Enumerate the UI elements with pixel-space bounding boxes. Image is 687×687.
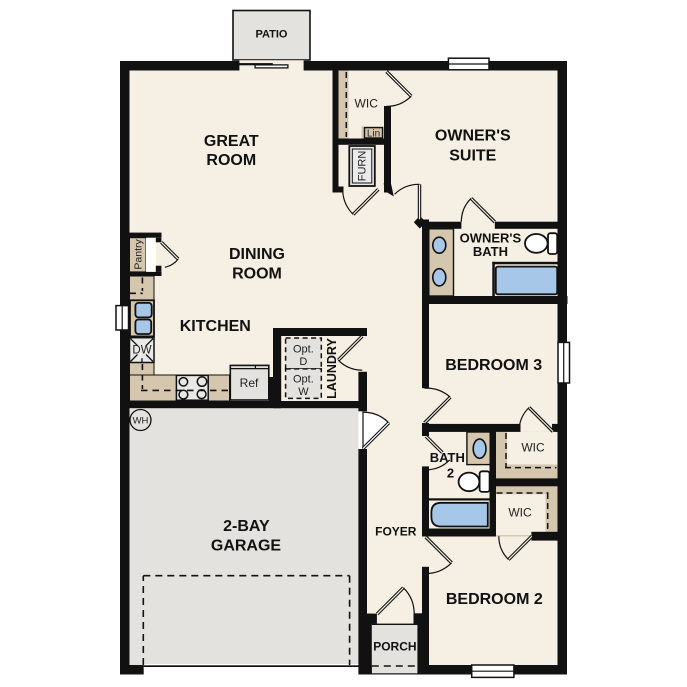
svg-text:SUITE: SUITE [449,147,496,164]
svg-text:GREAT: GREAT [204,133,259,150]
svg-text:ROOM: ROOM [232,266,282,283]
svg-text:ROOM: ROOM [206,152,256,169]
svg-text:BATH: BATH [473,244,508,259]
svg-text:FURN: FURN [357,151,369,182]
svg-text:WIC: WIC [355,96,379,110]
svg-text:BATH: BATH [430,450,465,465]
svg-text:2: 2 [447,466,454,481]
svg-text:WIC: WIC [508,506,532,520]
svg-text:OWNER'S: OWNER'S [435,127,511,144]
svg-text:WH: WH [133,415,149,426]
svg-text:LAUNDRY: LAUNDRY [325,338,339,399]
svg-text:W: W [298,386,309,398]
svg-text:WIC: WIC [521,441,545,455]
svg-text:Ref: Ref [240,376,259,390]
svg-text:PORCH: PORCH [373,640,416,654]
svg-text:2-BAY: 2-BAY [223,518,270,535]
svg-text:Opt.: Opt. [293,343,314,355]
svg-text:DW: DW [132,344,151,356]
svg-text:KITCHEN: KITCHEN [180,318,251,335]
svg-text:FOYER: FOYER [375,525,417,539]
svg-text:GARAGE: GARAGE [211,538,282,555]
svg-text:BEDROOM 3: BEDROOM 3 [445,357,542,374]
svg-text:Pantry: Pantry [133,238,145,269]
svg-text:PATIO: PATIO [256,29,288,41]
svg-text:Opt.: Opt. [293,373,314,385]
svg-text:D: D [299,356,307,368]
svg-text:DINING: DINING [229,246,285,263]
svg-text:Lin: Lin [367,128,380,139]
svg-text:BEDROOM 2: BEDROOM 2 [446,591,543,608]
